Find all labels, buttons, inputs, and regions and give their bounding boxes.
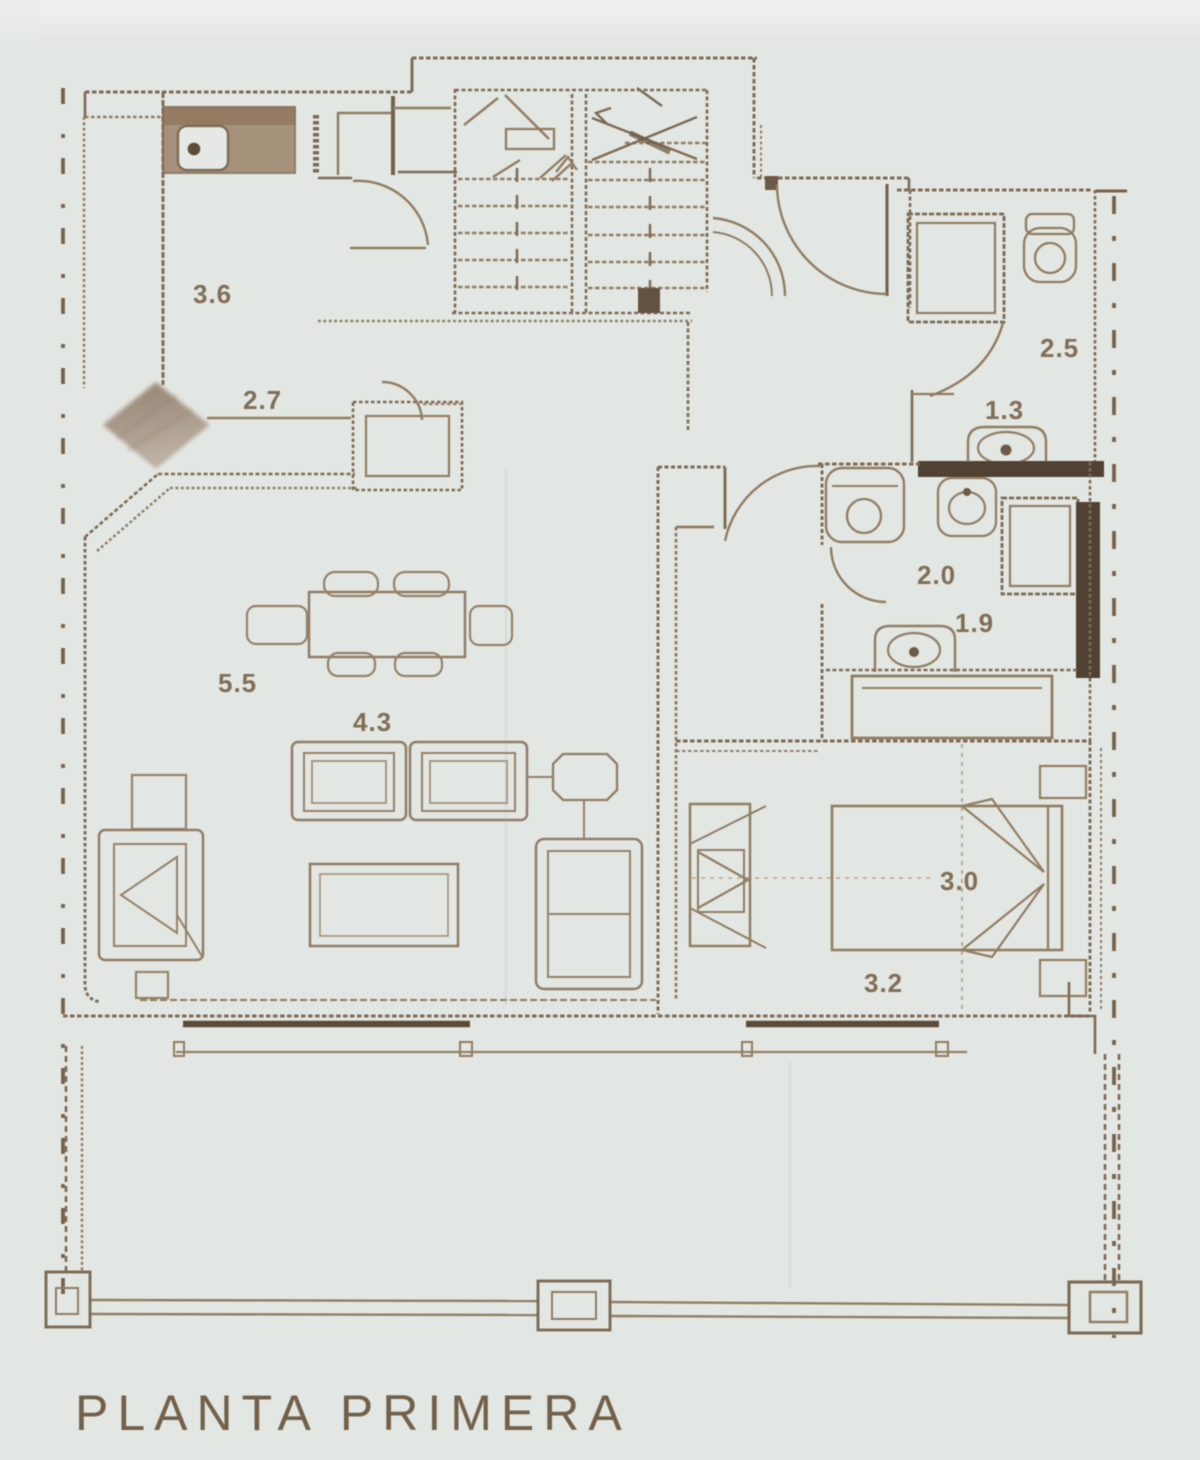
svg-text:2.7: 2.7 (243, 385, 282, 415)
svg-text:1.9: 1.9 (955, 608, 994, 638)
svg-text:4.3: 4.3 (353, 707, 392, 737)
svg-text:3.6: 3.6 (193, 279, 232, 309)
svg-text:1.3: 1.3 (985, 395, 1024, 425)
svg-text:5.5: 5.5 (218, 668, 257, 698)
svg-text:3.2: 3.2 (864, 968, 903, 998)
svg-text:2.5: 2.5 (1040, 333, 1079, 363)
svg-text:3.0: 3.0 (940, 866, 979, 896)
svg-text:2.0: 2.0 (917, 560, 956, 590)
svg-text:PLANTA PRIMERA: PLANTA PRIMERA (75, 1385, 631, 1441)
